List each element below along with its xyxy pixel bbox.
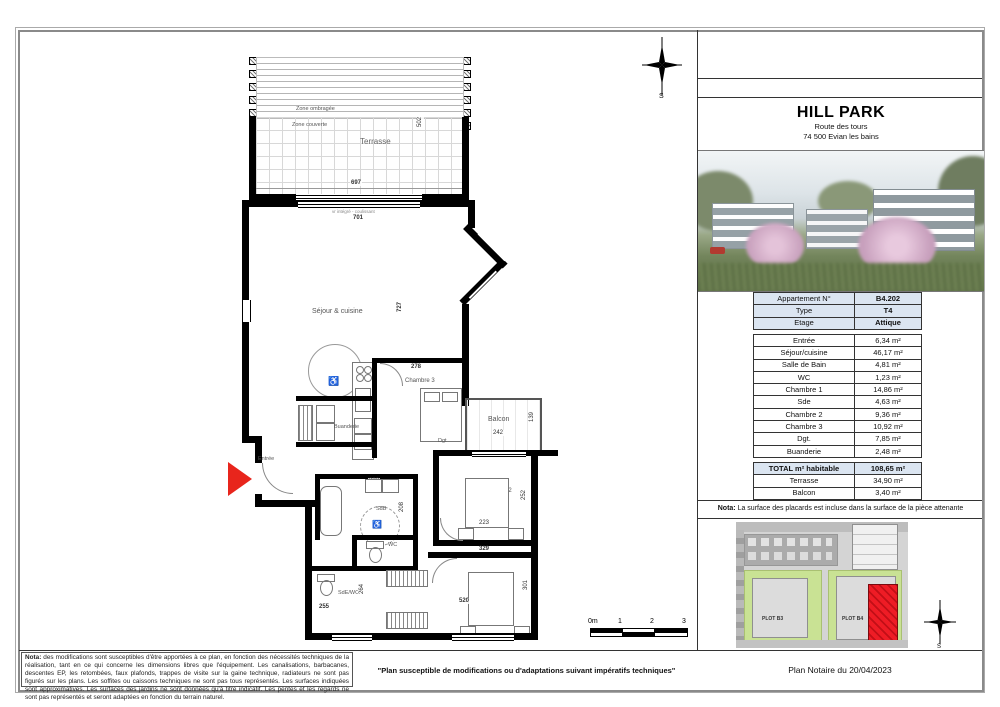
table-row: Balcon3,40 m²	[754, 487, 922, 499]
kitchen-sink	[355, 400, 371, 412]
balcon-label: Balcon	[488, 416, 509, 423]
sink	[382, 479, 399, 493]
compass-rose-small: S	[922, 600, 962, 654]
wall	[242, 200, 249, 300]
entry-door-arc	[262, 463, 293, 494]
parking-cars	[748, 552, 832, 560]
total-table: TOTAL m² habitable108,65 m² Terrasse34,9…	[753, 462, 922, 500]
pergola-post	[463, 109, 471, 117]
wall	[352, 535, 357, 570]
living-width-dim: 701	[352, 215, 364, 221]
bedroom3-door-arc	[380, 363, 403, 386]
foreground-meadow	[698, 263, 984, 291]
terrace-depth-dim: 502	[416, 117, 424, 127]
info-label: Appartement N°	[754, 293, 855, 305]
bedroom2-window	[472, 451, 526, 457]
wall	[372, 358, 469, 363]
table-row: Chambre 310,92 m²	[754, 421, 922, 433]
table-row: TOTAL m² habitable108,65 m²	[754, 463, 922, 475]
sde-window	[332, 634, 372, 641]
pillow	[424, 392, 440, 402]
footer-quote-cell: "Plan susceptible de modifications ou d'…	[356, 650, 697, 690]
terrace-shaded-zone	[256, 57, 464, 119]
toilet-bowl	[369, 547, 382, 563]
table-row: Séjour/cuisine46,17 m²	[754, 347, 922, 359]
wall	[242, 322, 249, 440]
room-label: Chambre 2	[754, 408, 855, 420]
compass-rose: S	[640, 37, 684, 107]
scale-label: 1	[618, 618, 622, 625]
balcony	[465, 398, 542, 454]
footer-quote: "Plan susceptible de modifications ou d'…	[378, 666, 676, 675]
living-sliding-door	[298, 201, 420, 208]
dim-line	[256, 188, 462, 189]
building-photo	[698, 150, 984, 292]
sejour-label: Séjour & cuisine	[312, 308, 363, 315]
terrasse-label: Terrasse	[360, 137, 391, 146]
wall	[468, 200, 475, 228]
room-label: Sde	[754, 396, 855, 408]
table-row: EtageAttique	[754, 317, 922, 329]
nota-text: Nota: La surface des placards est inclus…	[698, 505, 983, 512]
buanderie-label: Buanderie	[334, 424, 359, 430]
bathtub	[320, 486, 342, 536]
scale-segment	[622, 632, 656, 637]
sdb-height-dim: 208	[398, 502, 406, 512]
table-row: Chambre 29,36 m²	[754, 408, 922, 420]
toilet-bowl	[320, 580, 333, 596]
living-height-dim: 727	[396, 302, 404, 312]
footer-notes: Nota: des modifications sont susceptible…	[25, 654, 349, 702]
wheelchair-icon: ♿	[372, 520, 382, 529]
info-label: Type	[754, 305, 855, 317]
room-label: Entrée	[754, 335, 855, 347]
scale-bar: 0m 1 2 3	[588, 618, 688, 640]
room-area: 4,81 m²	[855, 359, 922, 371]
scale-label: 0m	[588, 618, 598, 625]
bedroom2-height-dim: 252	[520, 490, 528, 500]
table-row: Entrée6,34 m²	[754, 335, 922, 347]
room-label: WC	[754, 371, 855, 383]
wall	[531, 450, 538, 640]
pergola-post	[463, 96, 471, 104]
info-value: B4.202	[855, 293, 922, 305]
scale-segment	[654, 632, 688, 637]
room-area: 4,63 m²	[855, 396, 922, 408]
entree-label: Entrée	[258, 456, 274, 462]
washer	[316, 405, 335, 423]
sde-height-dim: 264	[358, 584, 366, 594]
plot-right-label: PLOT B4	[842, 616, 863, 622]
wall	[352, 535, 418, 540]
wall	[413, 474, 418, 570]
wall	[462, 304, 469, 362]
table-row: Buanderie2,48 m²	[754, 445, 922, 457]
wc-label: WC	[388, 542, 397, 548]
footer-notes-box: Nota: des modifications sont susceptible…	[21, 652, 353, 687]
nota-bold: Nota:	[718, 505, 736, 512]
total-value: 3,40 m²	[855, 487, 922, 499]
table-row: Sde4,63 m²	[754, 396, 922, 408]
bedroom1-window	[452, 634, 514, 641]
room-label: Buanderie	[754, 445, 855, 457]
pillow	[442, 392, 458, 402]
total-label: TOTAL m² habitable	[754, 463, 855, 475]
wheelchair-icon: ♿	[328, 376, 339, 387]
room-label: Chambre 1	[754, 384, 855, 396]
bedroom1-width-dim: 520	[458, 598, 470, 604]
footer-date-cell: Plan Notaire du 20/04/2023	[698, 650, 982, 690]
info-value: Attique	[855, 317, 922, 329]
hob-burner	[364, 374, 372, 382]
wall	[433, 456, 439, 542]
wall	[428, 552, 538, 558]
apartment-info-table: Appartement N°B4.202 TypeT4 EtageAttique	[753, 292, 922, 330]
scale-label: 3	[682, 618, 686, 625]
panel-row-line	[697, 97, 982, 98]
wall	[463, 224, 508, 269]
nota-top-line	[697, 500, 982, 501]
bedroom1-height-dim: 301	[522, 580, 530, 590]
wall	[462, 117, 469, 200]
room-label: Dgt.	[754, 433, 855, 445]
room-area: 6,34 m²	[855, 335, 922, 347]
wall	[305, 500, 312, 640]
room-label: Chambre 3	[754, 421, 855, 433]
hob-burner	[356, 366, 364, 374]
nota-bottom-line	[697, 518, 982, 519]
site-trees-left	[736, 530, 744, 648]
scale-segment	[590, 632, 624, 637]
door-note: vr intégré - coulissant	[332, 209, 375, 214]
nightstand	[508, 528, 524, 540]
project-address: Route des tours 74 500 Evian les bains	[697, 122, 985, 142]
room-area: 10,92 m²	[855, 421, 922, 433]
plot-left-label: PLOT B3	[762, 616, 783, 622]
total-label: Terrasse	[754, 475, 855, 487]
balcony-width-dim: 242	[492, 430, 504, 436]
wall	[296, 442, 372, 447]
site-building-north	[852, 524, 898, 570]
sdb-label: SdB	[376, 506, 386, 512]
total-value: 34,90 m²	[855, 475, 922, 487]
floor-plan: Zone ombragée Zone couverte Terrasse 697…	[20, 32, 697, 650]
footer-notes-text: des modifications sont susceptibles d'êt…	[25, 654, 349, 701]
hob-burner	[364, 366, 372, 374]
wall	[372, 358, 377, 458]
room-area: 14,86 m²	[855, 384, 922, 396]
scale-label: 2	[650, 618, 654, 625]
closet-shelves	[386, 570, 428, 587]
left-window	[242, 300, 251, 322]
footer-notes-bold: Nota:	[25, 654, 41, 661]
wall	[296, 396, 372, 401]
address-line-1: Route des tours	[697, 122, 985, 132]
highlighted-apartment	[868, 584, 898, 642]
footer-date: Plan Notaire du 20/04/2023	[788, 665, 892, 675]
terrace-width-dim: 697	[350, 180, 362, 186]
pergola-post	[463, 70, 471, 78]
compass-letter: S	[659, 93, 664, 100]
table-row: TypeT4	[754, 305, 922, 317]
entry-arrow-icon	[228, 462, 252, 496]
bedroom2-width-dim: 223	[478, 520, 490, 526]
zone-couverte-label: Zone couverte	[292, 122, 327, 128]
parking-cars	[748, 538, 832, 546]
dgt-label: Dgt	[438, 438, 447, 444]
room-area: 1,23 m²	[855, 371, 922, 383]
site-road-bottom	[736, 640, 908, 648]
bedroom3-width-dim: 278	[410, 364, 422, 370]
plan-sheet: Zone ombragée Zone couverte Terrasse 697…	[0, 0, 1000, 707]
wall	[242, 436, 262, 443]
room-area: 7,85 m²	[855, 433, 922, 445]
bed	[468, 572, 514, 626]
photo-car	[710, 247, 725, 254]
room-area: 9,36 m²	[855, 408, 922, 420]
room-label: Séjour/cuisine	[754, 347, 855, 359]
zone-ombragee-label: Zone ombragée	[296, 106, 335, 112]
sde-width-dim: 255	[318, 604, 330, 610]
bay-window-glass	[469, 271, 497, 299]
sde-wc-label: SdE/WC	[338, 590, 359, 596]
wall	[305, 566, 357, 571]
hob-burner	[356, 374, 364, 382]
nota-body: La surface des placards est incluse dans…	[736, 505, 964, 512]
address-line-2: 74 500 Evian les bains	[697, 132, 985, 142]
pergola-post	[463, 83, 471, 91]
info-label: Etage	[754, 317, 855, 329]
chambre3-label: Chambre 3	[405, 378, 435, 384]
bedroom2-door-arc	[440, 518, 463, 541]
surface-table: Entrée6,34 m² Séjour/cuisine46,17 m² Sal…	[753, 334, 922, 458]
pergola-post	[463, 57, 471, 65]
info-value: T4	[855, 305, 922, 317]
panel-row-line	[697, 78, 982, 79]
table-row: Terrasse34,90 m²	[754, 475, 922, 487]
site-plan: PLOT B3 PLOT B4	[736, 522, 908, 648]
table-row: WC1,23 m²	[754, 371, 922, 383]
table-row: Chambre 114,86 m²	[754, 384, 922, 396]
table-row: Appartement N°B4.202	[754, 293, 922, 305]
washer	[316, 423, 335, 441]
wall	[249, 117, 256, 200]
drying-rack	[298, 405, 313, 441]
site-plot-left-building	[752, 578, 808, 638]
bedroom1-door-arc	[432, 558, 457, 583]
total-value: 108,65 m²	[855, 463, 922, 475]
balcony-depth-dim: 139	[528, 412, 536, 422]
room-area: 2,48 m²	[855, 445, 922, 457]
table-row: Salle de Bain4,81 m²	[754, 359, 922, 371]
room-area: 46,17 m²	[855, 347, 922, 359]
closet-shelves	[386, 612, 428, 629]
room-label: Salle de Bain	[754, 359, 855, 371]
sink	[365, 479, 382, 493]
total-label: Balcon	[754, 487, 855, 499]
project-title: HILL PARK	[697, 104, 985, 122]
table-row: Dgt.7,85 m²	[754, 433, 922, 445]
